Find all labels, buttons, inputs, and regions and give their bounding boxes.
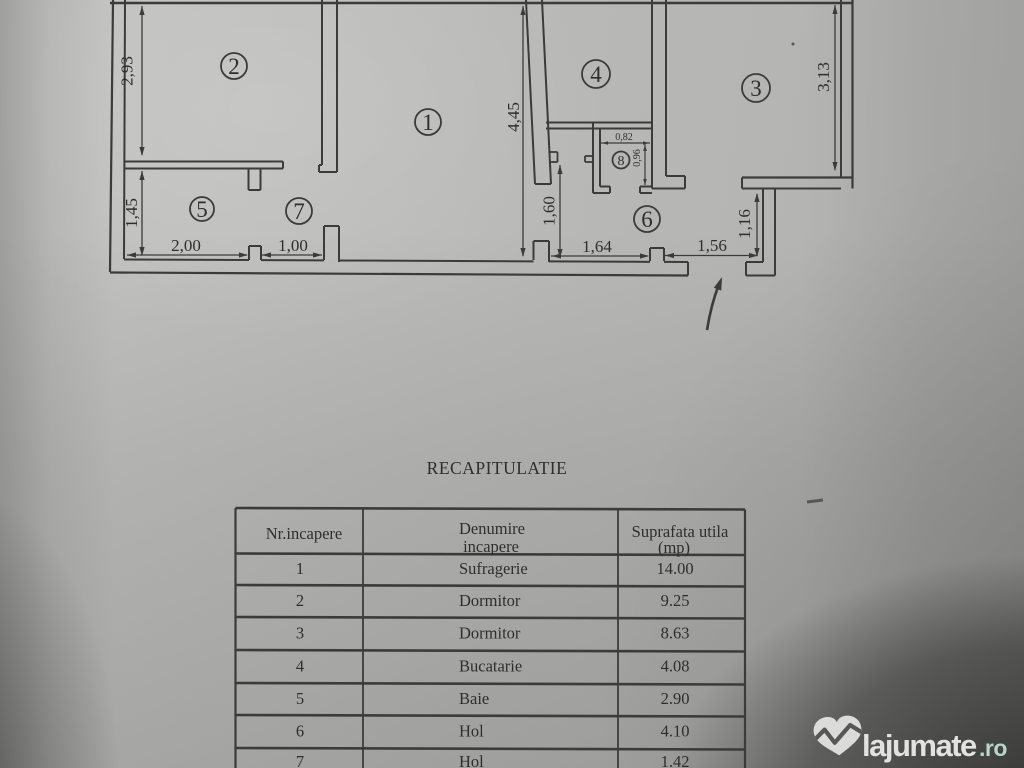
svg-text:1: 1 <box>296 559 304 578</box>
svg-text:1,16: 1,16 <box>735 209 754 239</box>
svg-text:1,45: 1,45 <box>122 198 141 228</box>
svg-text:1,64: 1,64 <box>582 237 612 256</box>
svg-text:9.25: 9.25 <box>661 591 690 610</box>
svg-text:(mp): (mp) <box>658 538 690 557</box>
svg-text:Bucatarie: Bucatarie <box>459 657 522 676</box>
svg-text:Hol: Hol <box>459 722 484 741</box>
svg-text:1: 1 <box>422 110 434 135</box>
svg-text:lajumate: lajumate <box>862 728 977 763</box>
svg-text:Nr.incapere: Nr.incapere <box>266 524 343 543</box>
svg-text:2: 2 <box>296 591 304 610</box>
svg-text:2: 2 <box>228 54 240 79</box>
svg-text:Dormitor: Dormitor <box>459 591 521 610</box>
svg-text:4,45: 4,45 <box>504 102 523 132</box>
svg-text:6: 6 <box>641 207 653 232</box>
svg-text:0,82: 0,82 <box>615 132 633 143</box>
svg-text:.ro: .ro <box>979 735 1007 761</box>
svg-text:1,56: 1,56 <box>697 236 727 255</box>
svg-text:Hol: Hol <box>459 752 484 768</box>
svg-text:7: 7 <box>296 752 304 768</box>
svg-text:4.08: 4.08 <box>661 657 690 676</box>
svg-text:5: 5 <box>296 689 304 708</box>
svg-text:Denumire: Denumire <box>459 519 525 538</box>
svg-text:3,13: 3,13 <box>814 62 833 92</box>
svg-text:8.63: 8.63 <box>661 624 690 643</box>
svg-text:Baie: Baie <box>459 689 489 708</box>
svg-text:8: 8 <box>618 154 625 169</box>
svg-text:0,96: 0,96 <box>632 149 643 167</box>
svg-text:Sufragerie: Sufragerie <box>459 559 528 578</box>
svg-text:1,60: 1,60 <box>540 196 559 226</box>
svg-text:2.90: 2.90 <box>661 689 690 708</box>
svg-text:3: 3 <box>296 624 304 643</box>
svg-text:1,00: 1,00 <box>278 236 308 255</box>
svg-text:incapere: incapere <box>463 537 519 556</box>
svg-text:4.10: 4.10 <box>661 722 690 741</box>
svg-text:3: 3 <box>750 76 762 101</box>
svg-text:2,93: 2,93 <box>118 56 137 86</box>
svg-text:5: 5 <box>196 197 208 222</box>
svg-text:6: 6 <box>296 722 304 741</box>
svg-text:7: 7 <box>293 199 305 224</box>
svg-text:14.00: 14.00 <box>656 559 693 578</box>
svg-text:Dormitor: Dormitor <box>459 624 521 643</box>
svg-text:4: 4 <box>590 62 602 87</box>
svg-text:2,00: 2,00 <box>171 236 201 255</box>
svg-text:1.42: 1.42 <box>661 752 690 768</box>
svg-text:4: 4 <box>296 657 304 676</box>
svg-text:RECAPITULATIE: RECAPITULATIE <box>427 458 568 478</box>
